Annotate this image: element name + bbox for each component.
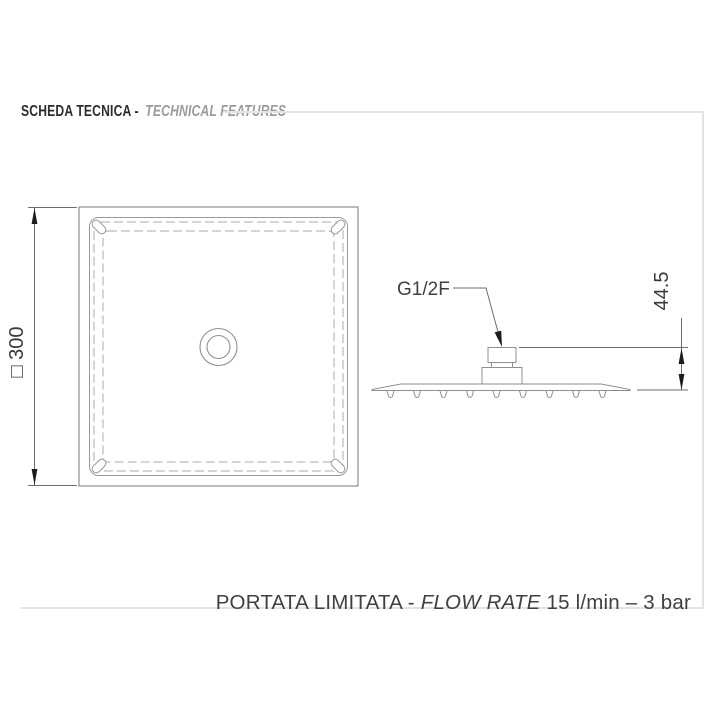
center-circle-inner [207, 336, 230, 359]
center-circle-outer [200, 329, 237, 366]
inner-rounded-square [90, 218, 348, 476]
connector-thread-block [488, 348, 516, 363]
flow-rate-note: PORTATA LIMITATA - FLOW RATE 15 l/min – … [192, 567, 691, 639]
dimension-300: □ 300 [6, 208, 77, 486]
arrow-down-icon [679, 374, 685, 390]
nozzle [493, 391, 500, 397]
leader-line [453, 288, 501, 341]
dimension-44-5: 44.5 [519, 272, 688, 390]
connection-label: G1/2F [397, 279, 450, 300]
nozzle [387, 391, 394, 397]
water-connector [482, 348, 522, 385]
top-view-drawing [79, 207, 358, 486]
connector-base-block [482, 368, 522, 385]
height-dimension-label: 44.5 [651, 272, 673, 311]
nozzle [440, 391, 447, 397]
chamfer-bottom-left [91, 458, 108, 475]
corner-chamfers [91, 219, 347, 475]
flow-note-english: FLOW RATE [421, 591, 541, 614]
arrow-down-icon [32, 469, 38, 485]
nozzle [599, 391, 606, 397]
gasket-dashed-outline-outer [94, 222, 343, 471]
square-dimension-label: □ 300 [6, 326, 28, 377]
gasket-dashed-outline-inner [103, 231, 334, 462]
nozzles [387, 391, 606, 397]
outer-square [79, 207, 358, 486]
connector-neck [492, 363, 513, 368]
flow-note-italian: PORTATA LIMITATA - [216, 591, 421, 614]
arrow-up-icon [32, 208, 38, 224]
chamfer-bottom-right [330, 458, 347, 475]
arrow-up-icon [679, 348, 685, 364]
nozzle [467, 391, 474, 397]
nozzle [520, 391, 527, 397]
chamfer-top-left [91, 219, 108, 236]
side-view-drawing: G1/2F 44.5 [372, 272, 688, 398]
leader-g12f: G1/2F [397, 279, 502, 347]
shower-plate-profile [372, 384, 630, 391]
nozzle [414, 391, 421, 397]
technical-sheet-page: SCHEDA TECNICA - TECHNICAL FEATURES [0, 0, 720, 720]
flow-note-value: 15 l/min – 3 bar [541, 591, 691, 614]
nozzle [573, 391, 580, 397]
leader-arrow-icon [495, 331, 502, 347]
nozzle [546, 391, 553, 397]
chamfer-top-right [330, 219, 347, 236]
